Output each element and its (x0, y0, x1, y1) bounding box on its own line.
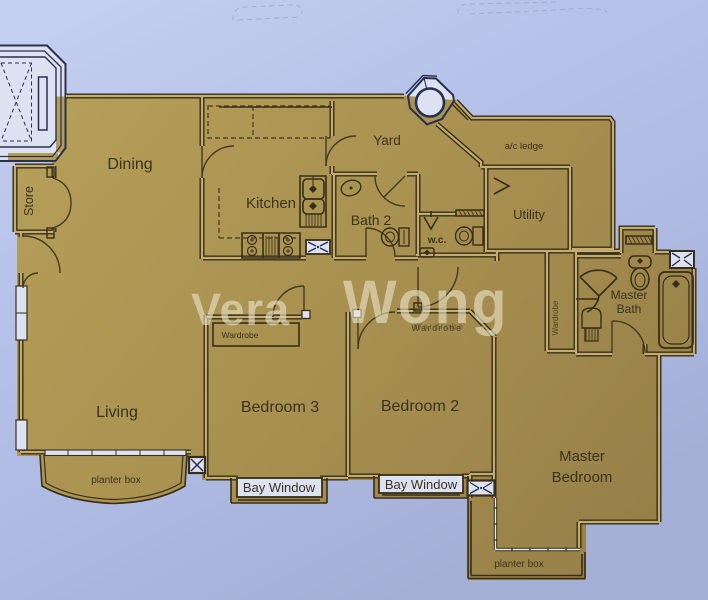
svg-text:Vera: Vera (191, 284, 290, 335)
svg-text:Master: Master (611, 288, 648, 302)
svg-text:a/c ledge: a/c ledge (505, 141, 544, 152)
svg-text:Utility: Utility (513, 207, 545, 222)
svg-text:Bedroom 2: Bedroom 2 (381, 398, 459, 415)
svg-text:planter box: planter box (494, 559, 543, 570)
svg-text:Bath: Bath (617, 302, 642, 316)
svg-text:Master: Master (559, 448, 605, 465)
svg-text:Bay Window: Bay Window (243, 480, 316, 495)
svg-text:Wong: Wong (343, 269, 509, 336)
svg-text:w.c.: w.c. (427, 235, 447, 246)
svg-text:Kitchen: Kitchen (246, 195, 296, 212)
svg-text:Bedroom 3: Bedroom 3 (241, 399, 319, 416)
svg-text:Bath 2: Bath 2 (351, 212, 392, 228)
svg-text:Bay Window: Bay Window (385, 477, 458, 492)
svg-text:Wardrobe: Wardrobe (551, 300, 560, 335)
svg-text:Bedroom: Bedroom (552, 469, 613, 486)
svg-text:Dining: Dining (107, 156, 152, 173)
svg-text:Yard: Yard (373, 133, 401, 148)
svg-text:Living: Living (96, 404, 138, 421)
svg-text:planter box: planter box (91, 475, 140, 486)
svg-text:Store: Store (22, 186, 36, 216)
